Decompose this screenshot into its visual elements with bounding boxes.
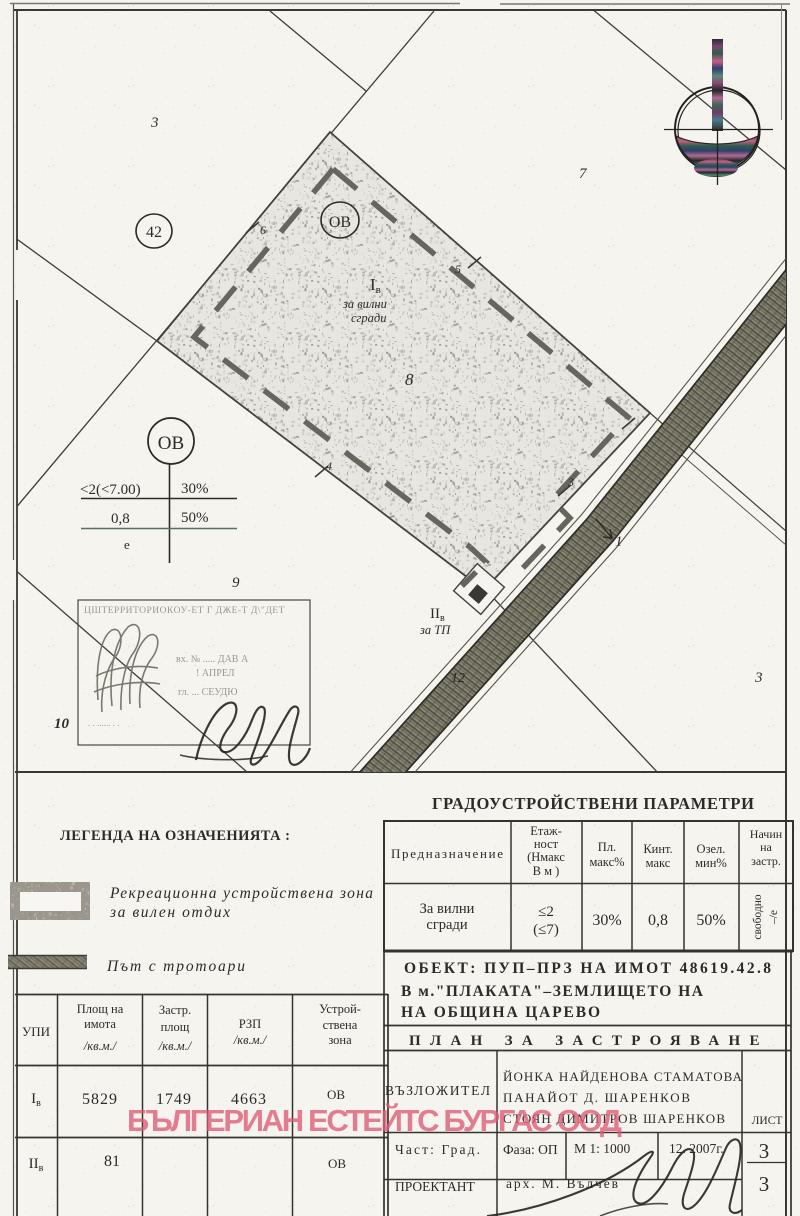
svg-text:ГРАДОУСТРОЙСТВЕНИ ПАРАМЕТРИ: ГРАДОУСТРОЙСТВЕНИ ПАРАМЕТРИ [432, 794, 754, 813]
svg-text:50%: 50% [696, 912, 725, 929]
svg-text:Кинт.: Кинт. [643, 842, 672, 856]
svg-text:вх. № ..... ДАВ А: вх. № ..... ДАВ А [176, 654, 249, 665]
svg-text:3: 3 [759, 1139, 770, 1163]
svg-text:БЪЛГЕРИАН ЕСТЕЙТС БУРГАС ООД: БЪЛГЕРИАН ЕСТЕЙТС БУРГАС ООД [127, 1102, 622, 1138]
svg-text:ОВ: ОВ [327, 1087, 345, 1102]
svg-text:на: на [760, 840, 772, 854]
svg-text:ПЛАН ЗА ЗАСТРОЯВАНЕ: ПЛАН ЗА ЗАСТРОЯВАНЕ [409, 1033, 766, 1049]
svg-text:6: 6 [260, 223, 266, 237]
svg-text:8: 8 [405, 370, 414, 389]
svg-text:за вилен отдих: за вилен отдих [109, 904, 230, 921]
svg-text:/кв.м./: /кв.м./ [83, 1039, 118, 1053]
svg-text:Начин: Начин [750, 827, 783, 841]
svg-text:12. 2007г.: 12. 2007г. [669, 1141, 724, 1156]
svg-text:12: 12 [451, 671, 465, 686]
svg-text:42: 42 [146, 224, 162, 241]
svg-text:Етаж-: Етаж- [530, 824, 562, 838]
svg-text:–/е: –/е [768, 910, 780, 925]
svg-text:≤2: ≤2 [538, 904, 554, 920]
svg-text:Фаза: ОП: Фаза: ОП [503, 1142, 558, 1157]
svg-text:ОБЕКТ: ПУП–ПРЗ НА ИМОТ 486: ОБЕКТ: ПУП–ПРЗ НА ИМОТ 48619.42.8 [404, 960, 771, 977]
svg-text:3: 3 [150, 115, 159, 131]
svg-text:Застр.: Застр. [159, 1003, 191, 1017]
svg-text:ОВ: ОВ [158, 433, 184, 454]
svg-text:застр.: застр. [751, 854, 781, 868]
svg-text:ОВ: ОВ [329, 214, 351, 231]
svg-text:5829: 5829 [82, 1091, 118, 1108]
svg-text:зона: зона [328, 1033, 352, 1047]
svg-text:Устрой-: Устрой- [319, 1002, 361, 1016]
svg-text:В м ): В м ) [533, 864, 560, 878]
svg-text:(≤7): (≤7) [533, 922, 559, 938]
svg-text:<2(<7.00): <2(<7.00) [80, 482, 141, 498]
svg-text:ПРОЕКТАНТ: ПРОЕКТАНТ [395, 1179, 475, 1194]
svg-text:площ: площ [161, 1020, 190, 1034]
svg-text:30%: 30% [181, 481, 209, 497]
svg-text:0,8: 0,8 [648, 912, 668, 929]
svg-text:имота: имота [84, 1017, 116, 1031]
svg-text:ЛЕГЕНДА НА ОЗНАЧЕНИЯТА :: ЛЕГЕНДА НА ОЗНАЧЕНИЯТА : [60, 828, 290, 844]
svg-text:за ТП: за ТП [419, 623, 451, 637]
svg-text:! АПРЕЛ: ! АПРЕЛ [196, 668, 235, 679]
svg-text:макс: макс [646, 856, 671, 870]
svg-text:(Нмакс: (Нмакс [527, 850, 565, 864]
svg-text:сгради: сгради [426, 917, 467, 933]
svg-text:За вилни: За вилни [420, 901, 475, 917]
svg-text:81: 81 [104, 1153, 120, 1170]
svg-text:50%: 50% [181, 510, 209, 526]
svg-text:свободно: свободно [752, 894, 764, 939]
svg-text:4: 4 [326, 459, 332, 473]
svg-text:арх. М. Вълчев: арх. М. Вълчев [506, 1176, 618, 1191]
svg-text:. . ...... . .: . . ...... . . [88, 718, 120, 728]
svg-text:ност: ност [534, 837, 559, 851]
svg-text:10: 10 [54, 716, 70, 732]
svg-text:5: 5 [455, 262, 461, 276]
svg-text:ЦШТЕРРИТОРИОКОУ-ЕТ Г ДЖЕ-Т: ЦШТЕРРИТОРИОКОУ-ЕТ Г ДЖЕ-Т Д\"ДЕТ [84, 606, 285, 616]
svg-text:за вилни: за вилни [342, 297, 387, 311]
svg-text:/кв.м./: /кв.м./ [158, 1039, 193, 1053]
svg-text:ЛИСТ: ЛИСТ [752, 1115, 783, 1127]
svg-text:3: 3 [567, 475, 574, 489]
svg-text:ЙОНКА НАЙДЕНОВА СТАМАТОВА: ЙОНКА НАЙДЕНОВА СТАМАТОВА [503, 1069, 743, 1084]
svg-text:3: 3 [759, 1172, 770, 1196]
svg-text:Път с тротоари: Път с тротоари [106, 958, 245, 975]
svg-text:УПИ: УПИ [22, 1024, 50, 1039]
svg-text:е: е [124, 537, 130, 552]
svg-text:Част: Град.: Част: Град. [395, 1142, 480, 1157]
svg-text:Озел.: Озел. [697, 842, 726, 856]
svg-text:0,8: 0,8 [111, 511, 130, 527]
svg-text:ВЪЗЛОЖИТЕЛ: ВЪЗЛОЖИТЕЛ [385, 1083, 490, 1098]
svg-text:Площ на: Площ на [77, 1002, 124, 1016]
svg-text:сгради: сгради [351, 311, 387, 325]
svg-text:30%: 30% [592, 912, 621, 929]
svg-text:1: 1 [615, 534, 623, 550]
svg-text:3: 3 [754, 670, 763, 686]
svg-text:гл. ... СЕУДЮ: гл. ... СЕУДЮ [178, 687, 238, 698]
svg-text:макс%: макс% [589, 855, 624, 869]
svg-text:РЗП: РЗП [239, 1017, 261, 1031]
svg-text:ОВ: ОВ [328, 1156, 346, 1171]
svg-text:НА ОБЩИНА ЦАРЕВО: НА ОБЩИНА ЦАРЕВО [401, 1004, 600, 1021]
svg-text:/кв.м./: /кв.м./ [233, 1033, 268, 1047]
svg-text:Пл.: Пл. [598, 840, 616, 854]
svg-text:мин%: мин% [695, 856, 727, 870]
svg-text:В м."ПЛАКАТА"–ЗЕМЛИЩЕТО НА: В м."ПЛАКАТА"–ЗЕМЛИЩЕТО НА [401, 983, 704, 1000]
svg-text:9: 9 [232, 575, 240, 591]
svg-text:М 1: 1000: М 1: 1000 [574, 1141, 631, 1156]
svg-text:ствена: ствена [323, 1018, 358, 1032]
